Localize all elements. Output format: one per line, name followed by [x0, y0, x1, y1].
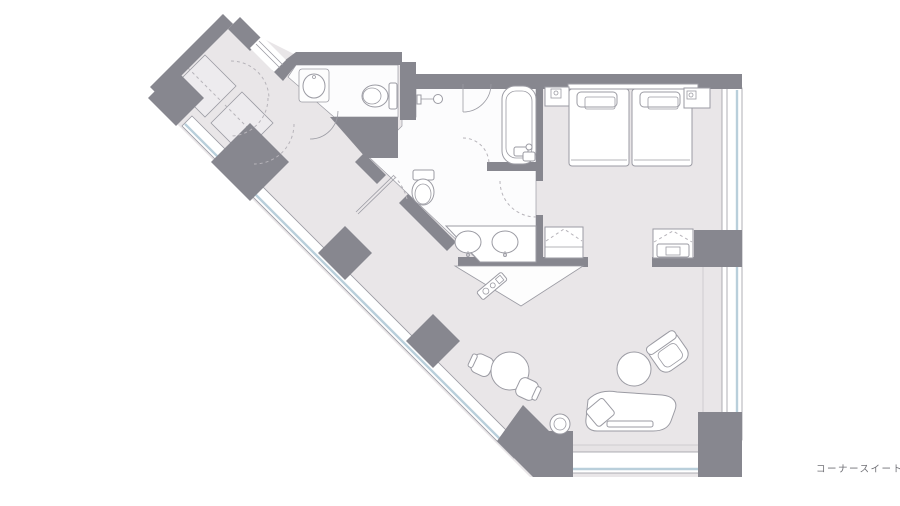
floor-plan-page: コーナースイート — [0, 0, 900, 506]
nightstand-icon-1 — [545, 87, 569, 106]
bathtub-icon — [502, 86, 536, 164]
pillar-e — [698, 412, 742, 477]
round-table-icon-2 — [617, 352, 651, 386]
floor-plan-drawing: コーナースイート — [0, 0, 900, 506]
tv-bench-icon — [653, 229, 693, 258]
bed-icon-1 — [569, 89, 629, 166]
washbasin-icon — [299, 69, 329, 102]
headboard — [568, 84, 698, 89]
wc-top-wall — [296, 52, 402, 65]
toilet-entry-icon — [362, 83, 397, 109]
bedroom-furniture — [545, 84, 710, 166]
room-type-label: コーナースイート — [816, 464, 900, 475]
vanity-divider-wall — [536, 215, 543, 262]
wc-shower-divider — [400, 62, 416, 120]
luggage-bench-icon — [545, 227, 583, 258]
chaise-lounge-icon — [585, 391, 676, 431]
tub-right-wall — [536, 74, 543, 181]
bed-icon-2 — [632, 89, 692, 166]
right-wall-stub — [694, 230, 742, 263]
toilet-bath-icon — [412, 170, 434, 205]
nightstand-icon-2 — [684, 88, 710, 108]
ottoman-icon — [550, 414, 570, 434]
